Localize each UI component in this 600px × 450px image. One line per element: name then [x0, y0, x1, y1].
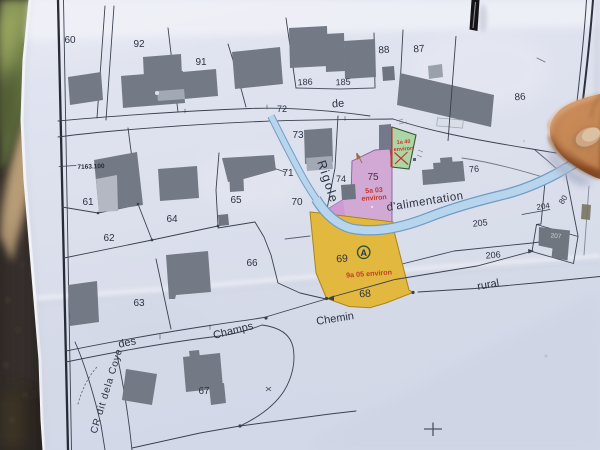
svg-text:de: de: [331, 97, 344, 110]
svg-text:74: 74: [336, 174, 346, 184]
svg-text:76: 76: [469, 164, 480, 175]
svg-text:65: 65: [230, 195, 242, 206]
svg-text:60: 60: [64, 35, 76, 46]
svg-text:86: 86: [514, 92, 526, 104]
svg-text:75: 75: [367, 172, 379, 183]
svg-text:71: 71: [282, 168, 294, 179]
svg-text:67: 67: [198, 386, 210, 397]
svg-text:186: 186: [297, 77, 313, 88]
svg-text:72: 72: [277, 104, 287, 114]
svg-text:207: 207: [550, 233, 562, 241]
svg-text:A: A: [360, 248, 367, 258]
svg-text:73: 73: [292, 130, 304, 141]
svg-text:205: 205: [472, 217, 488, 229]
svg-text:62: 62: [103, 233, 115, 244]
svg-text:7163.100: 7163.100: [77, 163, 105, 171]
svg-text:185: 185: [335, 77, 351, 88]
svg-text:63: 63: [133, 298, 145, 309]
svg-text:204: 204: [536, 201, 551, 212]
svg-text:91: 91: [195, 57, 207, 68]
svg-text:64: 64: [166, 214, 178, 225]
svg-text:92: 92: [133, 39, 145, 50]
svg-text:68: 68: [359, 288, 372, 301]
svg-text:61: 61: [82, 197, 94, 208]
svg-text:1a 40: 1a 40: [397, 139, 411, 146]
svg-text:88: 88: [378, 45, 390, 57]
svg-text:66: 66: [246, 258, 258, 269]
svg-text:206: 206: [485, 249, 501, 260]
svg-text:70: 70: [291, 197, 303, 208]
svg-text:87: 87: [413, 44, 425, 56]
svg-text:69: 69: [336, 253, 349, 266]
